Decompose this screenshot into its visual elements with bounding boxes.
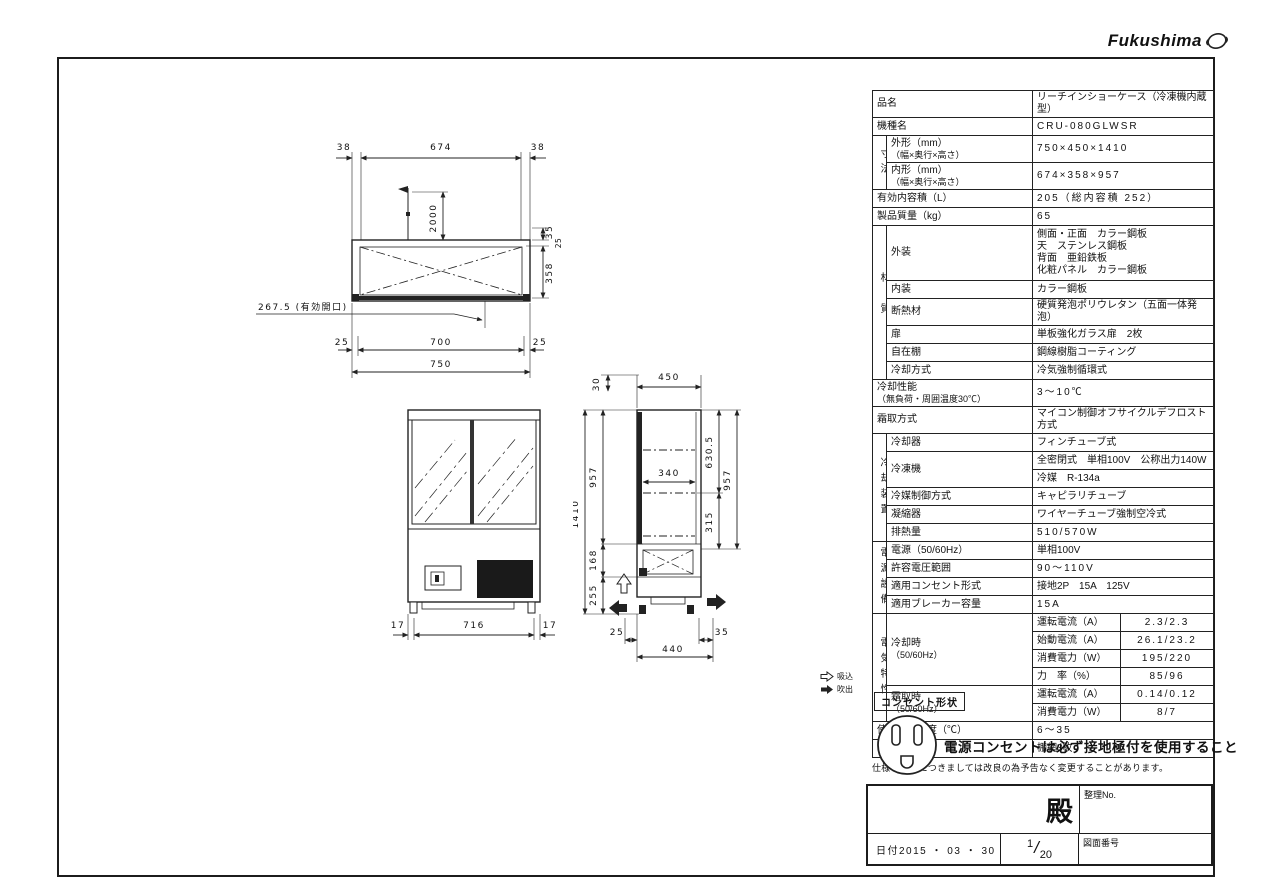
discharge-arrow-legend-icon — [820, 684, 834, 695]
page-cell: 1/20 — [1001, 834, 1079, 864]
spec-sheet-page: Fukushima 38 674 38 2000 — [0, 0, 1269, 894]
spec-value: 硬質発泡ポリウレタン（五面一体発泡） — [1033, 299, 1214, 326]
spec-value: 3～10℃ — [1033, 380, 1214, 407]
spec-sublabel: 始動電流（A） — [1033, 632, 1121, 650]
dim-25-base: 25 — [610, 628, 624, 638]
spec-value: 鋼線樹脂コーティング — [1033, 344, 1214, 362]
spec-value: 2.3/2.3 — [1121, 614, 1214, 632]
spec-label: 冷却性能（無負荷・周囲温度30℃） — [873, 380, 1033, 407]
spec-value: 単相100V — [1033, 542, 1214, 560]
spec-label: 冷却時（50/60Hz） — [887, 614, 1033, 686]
spec-sublabel: 運転電流（A） — [1033, 686, 1121, 704]
dim-957-right: 957 — [723, 469, 733, 491]
spec-value: リーチインショーケース（冷凍機内蔵型） — [1033, 91, 1214, 118]
spec-label: 外形（mm）（幅×奥行×高さ） — [887, 136, 1033, 163]
spec-sublabel: 消費電力（W） — [1033, 650, 1121, 668]
spec-group-materials: 材質 — [873, 226, 887, 380]
dim-35-base: 35 — [715, 628, 729, 638]
spec-label: 内装 — [887, 281, 1033, 299]
page-fraction: 1/20 — [1027, 838, 1052, 861]
spec-value: 単板強化ガラス扉 2枚 — [1033, 326, 1214, 344]
brand-logo-swirl-icon — [1204, 30, 1230, 52]
spec-column: 品名 リーチインショーケース（冷凍機内蔵型） 機種名 CRU-080GLWSR … — [872, 90, 1213, 774]
spec-value: 195/220 — [1121, 650, 1214, 668]
date-cell: 日付2015 ・ 03 ・ 30 — [868, 834, 1001, 864]
spec-value: 接地2P 15A 125V — [1033, 578, 1214, 596]
intake-label: 吸込 — [837, 671, 853, 682]
spec-label: 品名 — [873, 91, 1033, 118]
spec-label: 機種名 — [873, 118, 1033, 136]
caster-rear — [687, 605, 694, 614]
outlet-warning-text: 電源コンセントは必ず接地極付を使用すること — [944, 736, 1238, 756]
brand-logo: Fukushima — [1090, 28, 1230, 54]
spec-group-cooling-unit: 冷却装置 — [873, 434, 887, 542]
addressee-suffix: 殿 — [1046, 790, 1079, 829]
spec-label: 製品質量（kg） — [873, 208, 1033, 226]
caster-front — [639, 605, 646, 614]
dim-25-side: 25 — [554, 238, 563, 249]
front-view-drawing: 17 716 17 — [365, 390, 580, 665]
spec-sublabel: 力 率（%） — [1033, 668, 1121, 686]
dim-38-left: 38 — [337, 143, 351, 153]
spec-label: 断熱材 — [887, 299, 1033, 326]
dim-2000: 2000 — [429, 204, 439, 233]
spec-value: カラー鋼板 — [1033, 281, 1214, 299]
spec-label: 排熱量 — [887, 524, 1033, 542]
discharge-arrow-rear-icon — [707, 594, 726, 610]
airflow-legend: 吸込 吹出 — [820, 670, 853, 696]
dim-1410: 1410 — [573, 500, 581, 529]
dim-38-right: 38 — [531, 143, 545, 153]
dim-25-right: 25 — [533, 338, 547, 348]
dim-750: 750 — [430, 360, 452, 370]
spec-sublabel: 消費電力（W） — [1033, 704, 1121, 722]
plan-cabinet-outline — [352, 240, 530, 301]
glass-door-section — [637, 412, 642, 544]
dim-25-left: 25 — [335, 338, 349, 348]
spec-value-model: CRU-080GLWSR — [1033, 118, 1214, 136]
spec-value: 85/96 — [1121, 668, 1214, 686]
bottom-tray — [651, 597, 685, 604]
spec-value: 510/570W — [1033, 524, 1214, 542]
dim-674: 674 — [430, 143, 452, 153]
dim-358: 358 — [545, 262, 555, 284]
spec-label: 冷却方式 — [887, 362, 1033, 380]
spec-group-power: 電源設備 — [873, 542, 887, 614]
dim-315: 315 — [705, 511, 715, 533]
spec-label: 冷却器 — [887, 434, 1033, 452]
leg-right — [528, 602, 535, 613]
dim-340: 340 — [658, 469, 680, 479]
spec-value: 0.14/0.12 — [1121, 686, 1214, 704]
spec-value: マイコン制御オフサイクルデフロスト方式 — [1033, 407, 1214, 434]
side-view-drawing: 30 450 340 1410 — [573, 362, 773, 672]
dim-168: 168 — [589, 549, 599, 571]
spec-value: 15A — [1033, 596, 1214, 614]
spec-value: 冷気強制循環式 — [1033, 362, 1214, 380]
dim-716: 716 — [463, 621, 485, 631]
sensor-flag-icon — [398, 186, 408, 193]
controller-box — [425, 566, 461, 590]
shelves — [643, 450, 695, 536]
spec-value: フィンチューブ式 — [1033, 434, 1214, 452]
dim-450: 450 — [658, 373, 680, 383]
intake-arrow-legend-icon — [820, 671, 834, 682]
spec-value: キャピラリチューブ — [1033, 488, 1214, 506]
spec-label: 扉 — [887, 326, 1033, 344]
spec-value: 65 — [1033, 208, 1214, 226]
discharge-label: 吹出 — [837, 684, 853, 695]
spec-value: 26.1/23.2 — [1121, 632, 1214, 650]
dim-630-5: 630.5 — [705, 435, 715, 468]
brand-logo-text: Fukushima — [1108, 32, 1202, 51]
spec-value: 冷媒 R-134a — [1033, 470, 1214, 488]
spec-label: 凝縮器 — [887, 506, 1033, 524]
plan-front-track — [354, 296, 528, 300]
spec-label: 適用コンセント形式 — [887, 578, 1033, 596]
spec-value-exterior: 側面・正面 カラー鋼板 天 ステンレス鋼板 背面 亜鉛鉄板 化粧パネル カラー鋼… — [1033, 226, 1214, 281]
leg-left — [410, 602, 417, 613]
dim-17-left: 17 — [391, 621, 405, 631]
dim-700: 700 — [430, 338, 452, 348]
spec-label: 霜取方式 — [873, 407, 1033, 434]
spec-value: 8/7 — [1121, 704, 1214, 722]
spec-label: 許容電圧範囲 — [887, 560, 1033, 578]
spec-label: 外装 — [887, 226, 1033, 281]
outlet-icon — [876, 712, 940, 778]
spec-value: ワイヤーチューブ強制空冷式 — [1033, 506, 1214, 524]
spec-label: 自在棚 — [887, 344, 1033, 362]
spec-value: 90～110V — [1033, 560, 1214, 578]
spec-value: 674×358×957 — [1033, 163, 1214, 190]
control-no-cell: 整理No. — [1080, 786, 1211, 833]
vent-grille — [477, 560, 533, 598]
spec-label: 適用ブレーカー容量 — [887, 596, 1033, 614]
discharge-arrow-front-icon — [609, 600, 627, 616]
outlet-shape-label: コンセント形状 — [874, 692, 965, 711]
spec-value: 205（総内容積 252） — [1033, 190, 1214, 208]
control-no-label: 整理No. — [1084, 790, 1116, 800]
dim-35-plan: 35 — [545, 225, 555, 239]
spec-label: 電源（50/60Hz） — [887, 542, 1033, 560]
title-block: 殿 整理No. 日付2015 ・ 03 ・ 30 1/20 図面番号 — [866, 784, 1213, 866]
spec-label: 内形（mm）（幅×奥行×高さ） — [887, 163, 1033, 190]
dim-30: 30 — [592, 377, 602, 391]
spec-group-dimensions: 寸法 — [873, 136, 887, 190]
spec-table: 品名 リーチインショーケース（冷凍機内蔵型） 機種名 CRU-080GLWSR … — [872, 90, 1214, 758]
dim-17-right: 17 — [543, 621, 557, 631]
spec-label: 冷凍機 — [887, 452, 1033, 488]
dim-957-left: 957 — [589, 466, 599, 488]
dim-effective-opening: 267.5 (有効開口) — [258, 301, 348, 313]
spec-value: 全密閉式 単相100V 公称出力140W — [1033, 452, 1214, 470]
base-plate — [422, 602, 514, 609]
spec-label: 有効内容積（L） — [873, 190, 1033, 208]
spec-sublabel: 運転電流（A） — [1033, 614, 1121, 632]
plan-view-drawing: 38 674 38 2000 35 25 358 267.5 (有効開口) — [240, 140, 590, 385]
drawing-no-cell: 図面番号 — [1079, 834, 1211, 864]
drawing-no-label: 図面番号 — [1083, 838, 1119, 848]
addressee-cell: 殿 — [868, 786, 1080, 833]
date-value: 日付2015 ・ 03 ・ 30 — [876, 842, 996, 857]
spec-value: 750×450×1410 — [1033, 136, 1214, 163]
dim-255: 255 — [589, 584, 599, 606]
dim-440: 440 — [662, 645, 684, 655]
spec-label: 冷媒制御方式 — [887, 488, 1033, 506]
door-divider — [470, 420, 474, 524]
